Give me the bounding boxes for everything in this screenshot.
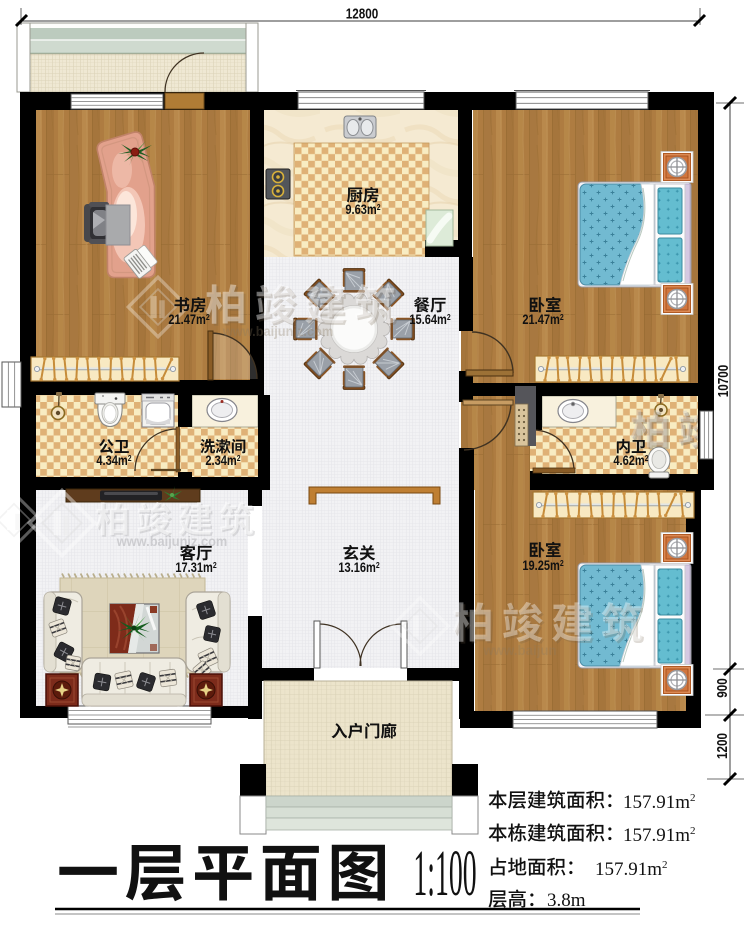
svg-text:17.31m2: 17.31m2 [175, 560, 216, 575]
svg-text:www.baijunjz.com: www.baijunjz.com [222, 324, 334, 339]
svg-text:12800: 12800 [346, 5, 379, 22]
svg-text:1200: 1200 [714, 733, 731, 759]
svg-text:4.34m2: 4.34m2 [96, 453, 131, 468]
svg-text:21.47m2: 21.47m2 [522, 312, 563, 327]
svg-text:9.63m2: 9.63m2 [345, 202, 380, 217]
svg-text:www.baijun: www.baijun [482, 643, 556, 658]
svg-text:21.47m2: 21.47m2 [168, 312, 209, 327]
svg-text:900: 900 [714, 678, 731, 698]
svg-text:13.16m2: 13.16m2 [338, 560, 379, 575]
svg-text:157.91m2: 157.91m2 [595, 859, 668, 880]
svg-text:4.62m2: 4.62m2 [613, 453, 648, 468]
svg-text:10700: 10700 [715, 365, 732, 398]
svg-text:2.34m2: 2.34m2 [205, 453, 240, 468]
svg-text:3.8m: 3.8m [547, 890, 586, 911]
svg-text:1:100: 1:100 [413, 836, 476, 909]
svg-text:157.91m2: 157.91m2 [623, 792, 696, 813]
svg-text:15.64m2: 15.64m2 [409, 312, 450, 327]
svg-text:19.25m2: 19.25m2 [522, 558, 563, 573]
svg-text:157.91m2: 157.91m2 [623, 825, 696, 846]
